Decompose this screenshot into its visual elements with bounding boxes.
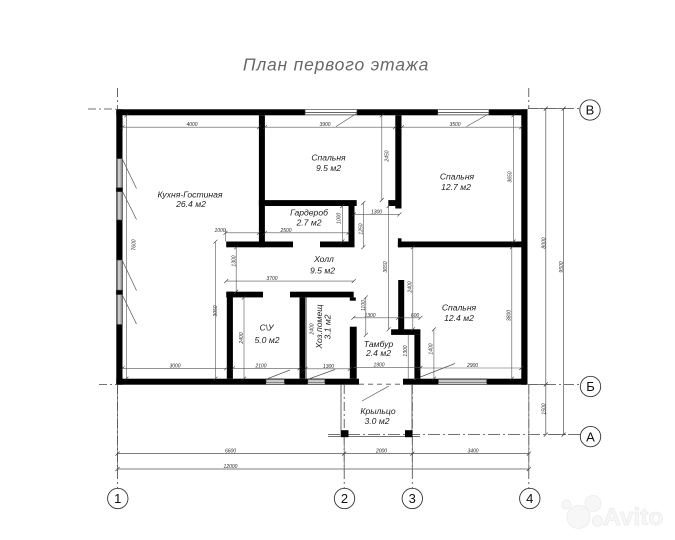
svg-text:2400: 2400 — [239, 332, 245, 344]
svg-text:4: 4 — [526, 491, 533, 506]
svg-text:В: В — [586, 103, 595, 118]
svg-text:Холл: Холл — [313, 254, 334, 264]
svg-text:2: 2 — [341, 491, 348, 506]
svg-text:3.1 м2: 3.1 м2 — [323, 314, 333, 339]
svg-text:Avito: Avito — [603, 504, 663, 531]
svg-text:План первого этажа: План первого этажа — [243, 55, 429, 75]
svg-text:Гардероб: Гардероб — [290, 208, 329, 218]
svg-text:Кухня-Гостиная: Кухня-Гостиная — [157, 190, 222, 200]
svg-text:2450: 2450 — [385, 150, 391, 162]
svg-text:Крыльцо: Крыльцо — [360, 406, 395, 416]
svg-text:1300: 1300 — [371, 210, 382, 216]
svg-text:2400: 2400 — [407, 281, 413, 293]
svg-text:12000: 12000 — [224, 464, 238, 470]
svg-text:12.4 м2: 12.4 м2 — [444, 313, 474, 323]
svg-text:3.0 м2: 3.0 м2 — [364, 416, 389, 426]
svg-text:1900: 1900 — [373, 362, 384, 368]
svg-text:3050: 3050 — [213, 305, 219, 316]
svg-text:9.5 м2: 9.5 м2 — [310, 266, 335, 276]
svg-text:600: 600 — [411, 313, 420, 319]
svg-text:2100: 2100 — [254, 363, 266, 369]
svg-text:6600: 6600 — [225, 449, 236, 455]
svg-text:3000: 3000 — [169, 363, 180, 369]
svg-text:9500: 9500 — [559, 261, 565, 272]
svg-text:1300: 1300 — [364, 313, 375, 319]
svg-text:Спальня: Спальня — [442, 303, 477, 313]
svg-text:3650: 3650 — [508, 171, 514, 182]
svg-text:1: 1 — [114, 491, 121, 506]
svg-text:1000: 1000 — [336, 213, 342, 224]
svg-text:3800: 3800 — [506, 310, 512, 321]
svg-text:4000: 4000 — [186, 122, 197, 128]
svg-text:8000: 8000 — [541, 237, 547, 248]
svg-text:1300: 1300 — [323, 364, 334, 370]
svg-text:3700: 3700 — [266, 276, 277, 282]
svg-text:2900: 2900 — [466, 363, 478, 369]
svg-text:3900: 3900 — [319, 122, 330, 128]
svg-text:3400: 3400 — [467, 449, 478, 455]
svg-text:2000: 2000 — [375, 449, 387, 455]
svg-text:3: 3 — [409, 491, 416, 506]
svg-text:26.4 м2: 26.4 м2 — [175, 199, 206, 209]
svg-text:9.5 м2: 9.5 м2 — [316, 163, 341, 173]
svg-text:1500: 1500 — [542, 403, 548, 414]
svg-text:Б: Б — [586, 379, 595, 394]
svg-text:2500: 2500 — [279, 228, 291, 234]
svg-text:С\У: С\У — [259, 323, 275, 333]
svg-text:1400: 1400 — [428, 343, 434, 354]
svg-text:3650: 3650 — [383, 261, 389, 272]
svg-text:1300: 1300 — [231, 255, 237, 266]
svg-text:3500: 3500 — [449, 122, 460, 128]
svg-text:1300: 1300 — [403, 345, 409, 356]
svg-text:Спальня: Спальня — [440, 172, 475, 182]
svg-text:Спальня: Спальня — [311, 153, 346, 163]
svg-text:5.0 м2: 5.0 м2 — [254, 335, 279, 345]
svg-text:12.7 м2: 12.7 м2 — [441, 182, 471, 192]
svg-text:7600: 7600 — [132, 239, 138, 250]
svg-text:2.4 м2: 2.4 м2 — [365, 348, 391, 358]
svg-text:1000: 1000 — [214, 228, 225, 234]
svg-text:1100: 1100 — [361, 300, 367, 311]
svg-text:А: А — [586, 429, 595, 444]
svg-text:2.7 м2: 2.7 м2 — [295, 218, 321, 228]
svg-text:1250: 1250 — [358, 223, 364, 234]
